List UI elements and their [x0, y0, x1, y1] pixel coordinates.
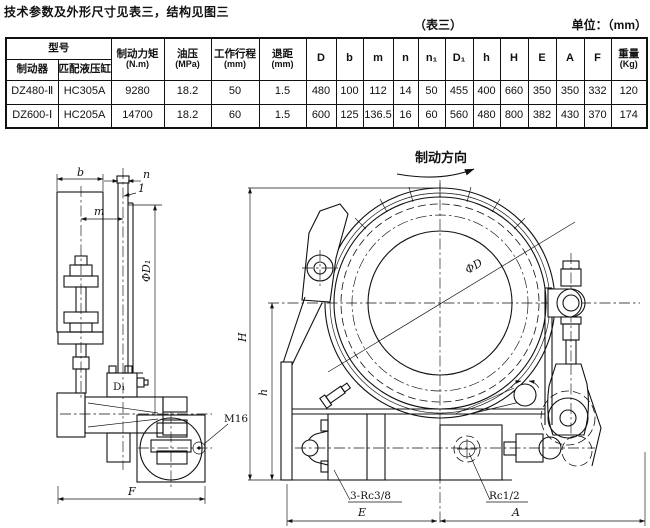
table-caption: （表三） — [414, 16, 462, 33]
table-cell: 400 — [473, 80, 500, 104]
table-cell: 332 — [584, 80, 611, 104]
direction-arrow-icon — [397, 169, 474, 177]
valve-label: D₁ — [113, 381, 126, 393]
col-header-D: D — [306, 38, 336, 80]
table-cell: 60 — [418, 104, 445, 128]
bleeder-valve — [320, 381, 352, 409]
svg-text:Rc1/2: Rc1/2 — [489, 490, 520, 502]
col-header-torque: 制动力矩(N.m) — [111, 38, 164, 80]
svg-text:m: m — [94, 205, 104, 218]
table-cell: 112 — [363, 80, 393, 104]
svg-text:h: h — [257, 389, 270, 396]
table-cell: 370 — [584, 104, 611, 128]
pivot-arm — [302, 204, 348, 302]
technical-drawing: D₁ — [0, 140, 650, 528]
table-cell: 480 — [473, 104, 500, 128]
col-header-stroke: 工作行程(mm) — [211, 38, 259, 80]
catalog-page: 技术参数及外形尺寸见表三，结构见图三 （表三） 单位：（mm） 型号 制动力矩(… — [0, 0, 650, 528]
col-header-brake: 制动器 — [6, 59, 58, 80]
dim-m: m — [81, 205, 123, 219]
table-cell: 60 — [211, 104, 259, 128]
col-header-A: A — [556, 38, 584, 80]
right-view: ΦD — [236, 150, 645, 526]
table-cell: 174 — [611, 104, 647, 128]
port-callout-rc12: Rc1/2 — [469, 453, 528, 502]
table-cell: 480 — [306, 80, 336, 104]
table-cell: 18.2 — [164, 104, 211, 128]
table-cell: 50 — [211, 80, 259, 104]
table-row: DZ480-Ⅱ HC305A 9280 18.2 50 1.5 480 100 … — [6, 80, 647, 104]
table-cell: 350 — [528, 80, 556, 104]
svg-text:3-Rc3/8: 3-Rc3/8 — [350, 490, 391, 502]
table-cell: 9280 — [111, 80, 164, 104]
table-cell: 800 — [500, 104, 528, 128]
unit-label: 单位：（mm） — [572, 16, 647, 33]
left-view: D₁ — [57, 166, 248, 504]
dim-h: h — [257, 303, 272, 480]
col-header-n1: n₁ — [418, 38, 445, 80]
col-header-E: E — [528, 38, 556, 80]
table-cell: 125 — [336, 104, 363, 128]
col-header-model: 型号 — [6, 38, 111, 59]
table-cell: 18.2 — [164, 80, 211, 104]
svg-text:ΦD₁: ΦD₁ — [140, 260, 153, 282]
table-cell: 455 — [445, 80, 473, 104]
cell-model: DZ480-Ⅱ — [6, 80, 58, 104]
col-header-F: F — [584, 38, 611, 80]
col-header-H: H — [500, 38, 528, 80]
page-title: 技术参数及外形尺寸见表三，结构见图三 — [4, 3, 229, 20]
table-cell: 1.5 — [259, 104, 306, 128]
table-cell: 100 — [336, 80, 363, 104]
svg-text:b: b — [77, 166, 84, 179]
table-cell: 560 — [445, 104, 473, 128]
svg-text:H: H — [236, 332, 249, 343]
spec-table: 型号 制动力矩(N.m) 油压(MPa) 工作行程(mm) 退距(mm) D b… — [5, 37, 648, 129]
table-cell: 1.5 — [259, 80, 306, 104]
table-cell: 14700 — [111, 104, 164, 128]
svg-text:A: A — [511, 506, 520, 519]
cell-cylinder: HC205A — [58, 104, 111, 128]
table-cell: 430 — [556, 104, 584, 128]
svg-text:E: E — [357, 506, 366, 519]
table-cell: 120 — [611, 80, 647, 104]
dim-n: n — [104, 168, 150, 181]
dim-gap: 1 — [124, 182, 145, 196]
svg-text:1: 1 — [138, 182, 145, 195]
col-header-D1: D₁ — [445, 38, 473, 80]
col-header-cylinder: 匹配液压缸 — [58, 59, 111, 80]
table-cell: 600 — [306, 104, 336, 128]
table-cell: 350 — [556, 80, 584, 104]
svg-text:M16: M16 — [224, 413, 248, 425]
col-header-n: n — [393, 38, 418, 80]
col-header-m: m — [363, 38, 393, 80]
svg-text:n: n — [143, 168, 150, 181]
table-cell: 660 — [500, 80, 528, 104]
dim-F: F — [58, 485, 205, 504]
brake-disc: ΦD — [325, 183, 575, 418]
col-header-retreat: 退距(mm) — [259, 38, 306, 80]
dim-b: b — [57, 166, 103, 191]
hydraulic-cylinder — [302, 414, 385, 480]
svg-text:F: F — [127, 485, 136, 498]
table-cell: 136.5 — [363, 104, 393, 128]
disc-edge — [107, 176, 143, 373]
table-cell: 50 — [418, 80, 445, 104]
col-header-weight: 重量(Kg) — [611, 38, 647, 80]
table-cell: 16 — [393, 104, 418, 128]
base-box — [440, 388, 520, 480]
braking-direction-label: 制动方向 — [415, 150, 467, 165]
m16-callout: M16 — [204, 413, 248, 444]
table-cell: 14 — [393, 80, 418, 104]
table-cell: 382 — [528, 104, 556, 128]
braking-direction: 制动方向 — [397, 150, 474, 177]
dim-A: A — [440, 452, 645, 526]
cell-model: DZ600-Ⅰ — [6, 104, 58, 128]
col-header-h: h — [473, 38, 500, 80]
col-header-pressure: 油压(MPa) — [164, 38, 211, 80]
col-header-b: b — [336, 38, 363, 80]
cell-cylinder: HC305A — [58, 80, 111, 104]
table-row: DZ600-Ⅰ HC205A 14700 18.2 60 1.5 600 125… — [6, 104, 647, 128]
dim-phiD: ΦD — [463, 256, 485, 276]
